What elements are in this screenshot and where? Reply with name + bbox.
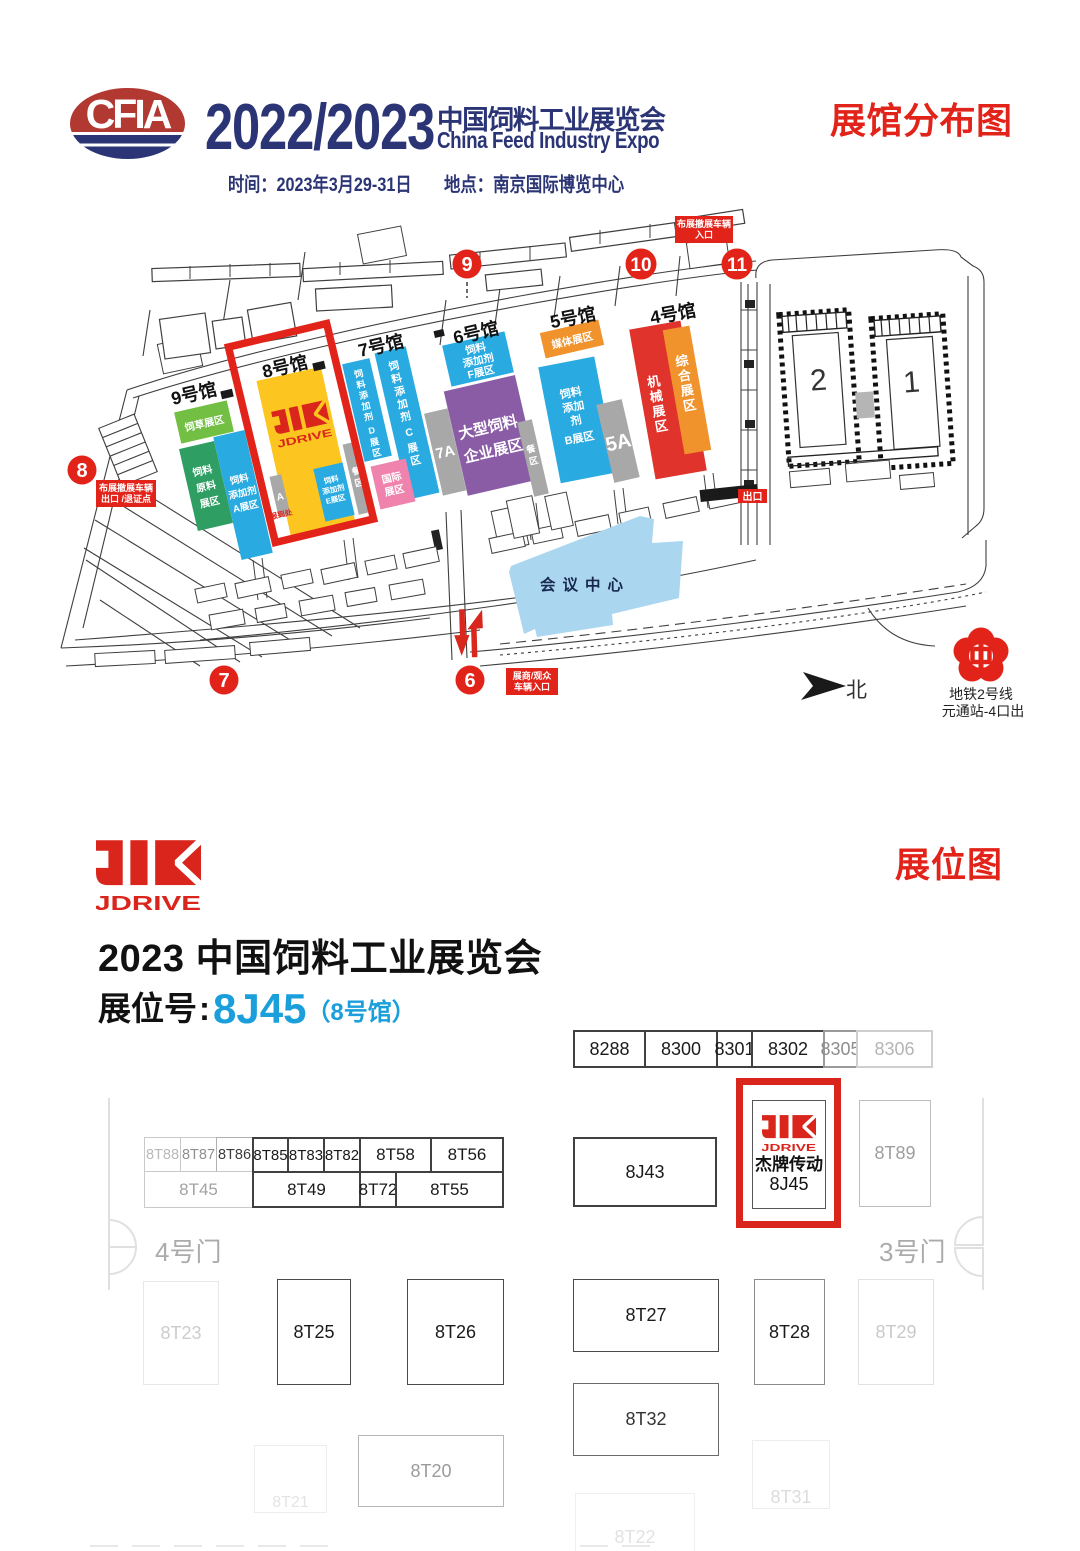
svg-text:JDRIVE: JDRIVE	[762, 1143, 816, 1152]
